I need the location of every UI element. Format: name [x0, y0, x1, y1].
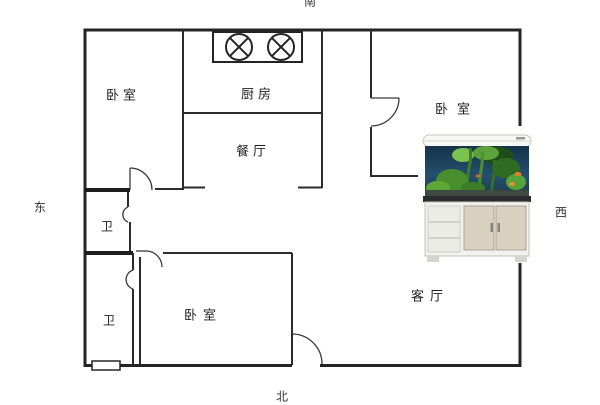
- room-label-bedroom-bottom: 卧室: [184, 305, 222, 324]
- compass-north-label: 北: [276, 388, 288, 405]
- compass-south-label: 南: [304, 0, 316, 10]
- fish-tank-illustration: [418, 126, 542, 263]
- compass-west-label: 西: [555, 204, 567, 221]
- room-label-living-room: 客厅: [411, 286, 449, 305]
- compass-east-label: 东: [34, 199, 46, 216]
- room-label-bedroom-top-left: 卧室: [106, 85, 140, 104]
- room-label-bathroom-lower: 卫: [103, 312, 115, 329]
- room-label-kitchen: 厨房: [241, 84, 275, 103]
- floor-plan: 卧室 厨房 餐厅 卧室 卫 卫 卧室 客厅 南 北 东 西: [0, 0, 600, 400]
- stove-burner-icon: [268, 34, 294, 60]
- aquarium-image: [418, 126, 542, 263]
- cabinet-stand: [425, 202, 529, 262]
- room-label-dining-room: 餐厅: [236, 141, 270, 160]
- door-arc-bathroom-upper: [123, 207, 128, 222]
- stove-burner-icon: [226, 34, 252, 60]
- stove: [213, 32, 302, 62]
- door-arc-bathroom-lower: [126, 270, 133, 289]
- door-arc-bedroom-top-right: [371, 98, 399, 126]
- room-label-bedroom-top-right: 卧室: [435, 99, 479, 118]
- window-icon: [92, 361, 120, 370]
- door-arc-entrance: [292, 334, 322, 365]
- door-arc-bedroom-top-left: [130, 168, 152, 190]
- room-label-bathroom-upper: 卫: [101, 218, 113, 235]
- fish-tank: [423, 135, 531, 202]
